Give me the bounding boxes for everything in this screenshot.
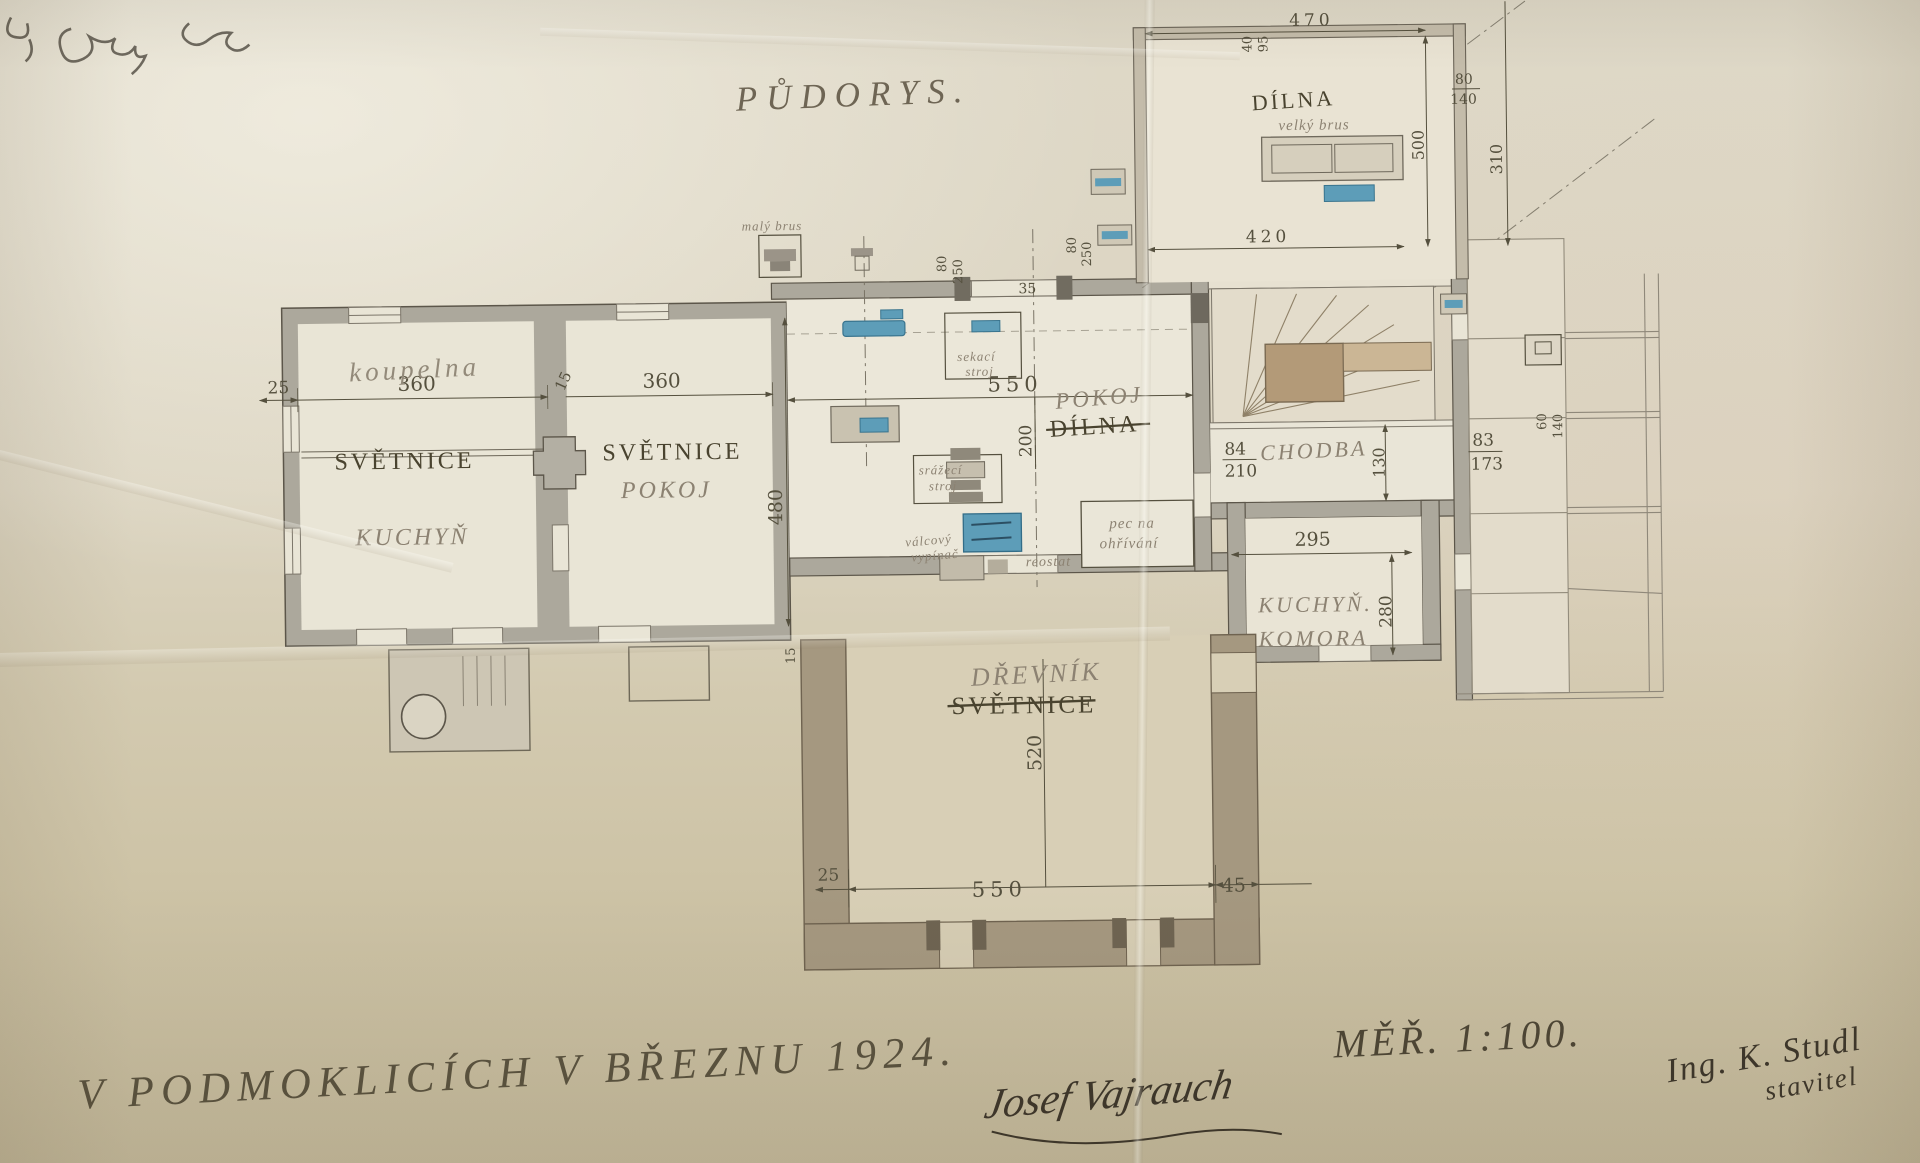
dim-b25: 25: [817, 865, 839, 885]
dim-f80a: 80: [1455, 72, 1473, 88]
blue-machine-long: [843, 321, 905, 337]
dim-d35: 35: [1018, 281, 1036, 297]
dim-f83: 83: [1472, 430, 1494, 450]
dim-mid550: 550: [987, 372, 1042, 397]
well-circle: [401, 694, 446, 739]
label-komora: KOMORA: [1258, 625, 1369, 651]
dim-room2: 360: [642, 368, 680, 392]
label-sekaci-2: stroj: [965, 364, 994, 379]
pec-box: [1081, 500, 1194, 567]
dim-h480: 480: [765, 489, 787, 526]
label-velky-brus: velký brus: [1278, 117, 1349, 134]
dim-f250c: 250: [1080, 241, 1095, 266]
dim-t420: 420: [1246, 227, 1291, 248]
dim-f250b: 250: [951, 259, 966, 284]
owner-signature: Josef Vajrauch: [981, 1061, 1236, 1128]
label-reostat: reostat: [1026, 555, 1072, 571]
dim-t470: 470: [1289, 10, 1334, 31]
dim-h280: 280: [1376, 595, 1396, 628]
chimney-block: [1190, 293, 1208, 323]
label-srazeci-2: stroj: [929, 478, 958, 493]
label-kuchyn-2: KUCHYŇ.: [1257, 591, 1373, 617]
label-koupelna: koupelna: [348, 351, 480, 387]
label-chodba: CHODBA: [1260, 435, 1368, 465]
dim-v310: 310: [1487, 144, 1506, 175]
floorplan-drawing: 25 360 15 360 550 480 200 84 210 130 83 …: [0, 0, 1920, 1163]
label-drevnik: DŘEVNÍK: [969, 657, 1102, 692]
dim-f84: 84: [1224, 439, 1246, 459]
dim-f80b: 80: [935, 256, 950, 273]
dim-f140b: 140: [1551, 414, 1566, 439]
dim-wall25: 25: [267, 378, 289, 398]
label-maly-brus: malý brus: [742, 218, 803, 234]
dim-b550: 550: [972, 877, 1027, 902]
dim-f210: 210: [1225, 461, 1258, 481]
blue-machine-box: [963, 513, 1021, 552]
dim-f40: 40: [1240, 36, 1255, 53]
label-svetnice-1: SVĚTNICE: [334, 448, 474, 476]
stair-landing-block: [1265, 343, 1344, 402]
dim-c200: 200: [1016, 425, 1036, 458]
dim-f173: 173: [1470, 454, 1503, 474]
label-svetnice-2: SVĚTNICE: [602, 439, 742, 467]
dim-v520: 520: [1024, 735, 1046, 772]
dim-v130: 130: [1369, 447, 1388, 478]
label-pec-2: ohřívání: [1099, 536, 1159, 553]
handwritten-note: [7, 15, 250, 76]
dim-f140a: 140: [1450, 92, 1477, 108]
owner-signature-text: Josef Vajrauch: [981, 1061, 1236, 1128]
dim-f80c: 80: [1065, 237, 1080, 254]
dim-b45: 45: [1222, 875, 1246, 897]
dim-w295: 295: [1294, 528, 1331, 550]
dim-d15b: 15: [784, 647, 799, 664]
label-srazeci-1: srážecí: [919, 462, 963, 478]
photographed-floorplan: 25 360 15 360 550 480 200 84 210 130 83 …: [0, 0, 1920, 1163]
dim-f95: 95: [1256, 36, 1271, 53]
drawing-title: PŮDORYS.: [734, 69, 972, 119]
dim-v500: 500: [1409, 130, 1428, 161]
room-svetnice-pokoj: [566, 318, 775, 626]
entrance-stoops: [389, 646, 710, 752]
wc-fixture: [1525, 335, 1561, 365]
dim-f60: 60: [1535, 413, 1550, 430]
label-sekaci-1: sekací: [957, 349, 996, 364]
scale-caption: MĚŘ. 1:100.: [1331, 1010, 1583, 1067]
location-date-caption: V PODMOKLICÍCH V BŘEZNU 1924.: [77, 1027, 959, 1119]
label-pokoj-2: POKOJ: [620, 477, 712, 504]
architect-signature: Ing. K. Studl stavitel: [1662, 1020, 1870, 1122]
